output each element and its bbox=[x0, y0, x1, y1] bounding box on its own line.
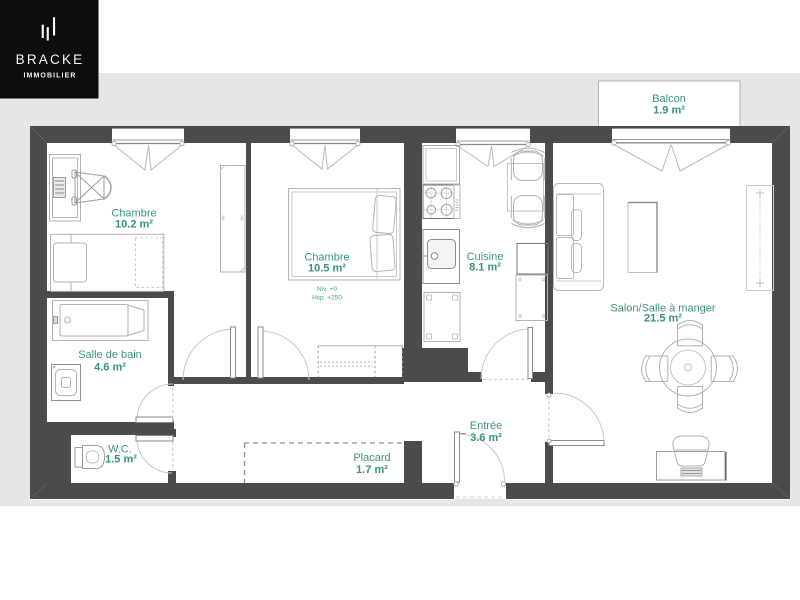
svg-text:10.5 m²: 10.5 m² bbox=[308, 263, 346, 275]
svg-text:Placard: Placard bbox=[353, 452, 390, 464]
svg-text:Hsp. +250: Hsp. +250 bbox=[312, 295, 342, 302]
svg-text:Salle de bain: Salle de bain bbox=[78, 349, 142, 361]
svg-text:1.7 m²: 1.7 m² bbox=[356, 464, 388, 476]
svg-text:3.6 m²: 3.6 m² bbox=[470, 432, 502, 444]
svg-text:IMMOBILIER: IMMOBILIER bbox=[24, 73, 77, 80]
svg-text:1.5 m²: 1.5 m² bbox=[105, 454, 137, 466]
svg-text:Niv. +0: Niv. +0 bbox=[317, 286, 337, 293]
svg-text:4.6 m²: 4.6 m² bbox=[94, 362, 126, 374]
svg-text:BRACKE: BRACKE bbox=[16, 52, 85, 67]
svg-text:Entrée: Entrée bbox=[470, 420, 502, 432]
svg-text:1.9 m²: 1.9 m² bbox=[653, 105, 685, 117]
svg-text:8.1 m²: 8.1 m² bbox=[469, 262, 501, 274]
svg-text:21.5 m²: 21.5 m² bbox=[644, 313, 682, 325]
svg-text:Balcon: Balcon bbox=[652, 93, 686, 105]
svg-text:10.2 m²: 10.2 m² bbox=[115, 219, 153, 231]
